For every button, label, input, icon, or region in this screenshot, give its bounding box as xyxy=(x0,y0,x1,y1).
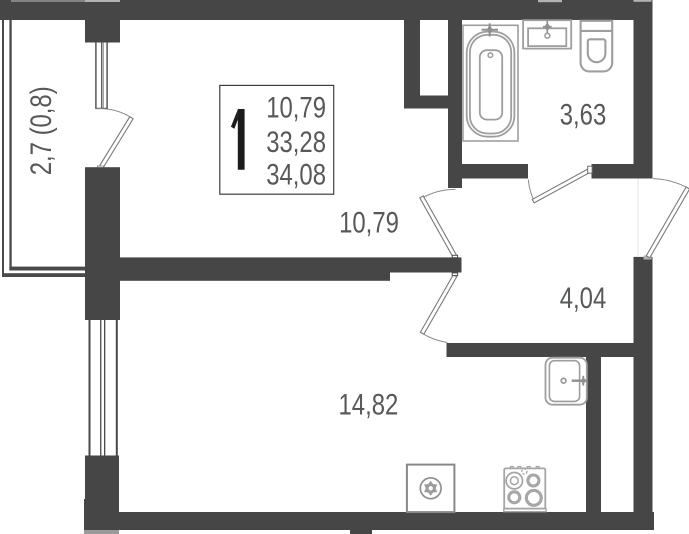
svg-text:4,04: 4,04 xyxy=(560,282,607,315)
svg-text:33,28: 33,28 xyxy=(266,126,326,159)
svg-text:14,82: 14,82 xyxy=(339,388,399,421)
svg-text:3,63: 3,63 xyxy=(560,98,606,131)
svg-text:10,79: 10,79 xyxy=(339,206,399,239)
svg-text:34,08: 34,08 xyxy=(266,158,326,191)
svg-text:2,7 (0,8): 2,7 (0,8) xyxy=(25,86,58,175)
svg-text:10,79: 10,79 xyxy=(266,91,326,124)
